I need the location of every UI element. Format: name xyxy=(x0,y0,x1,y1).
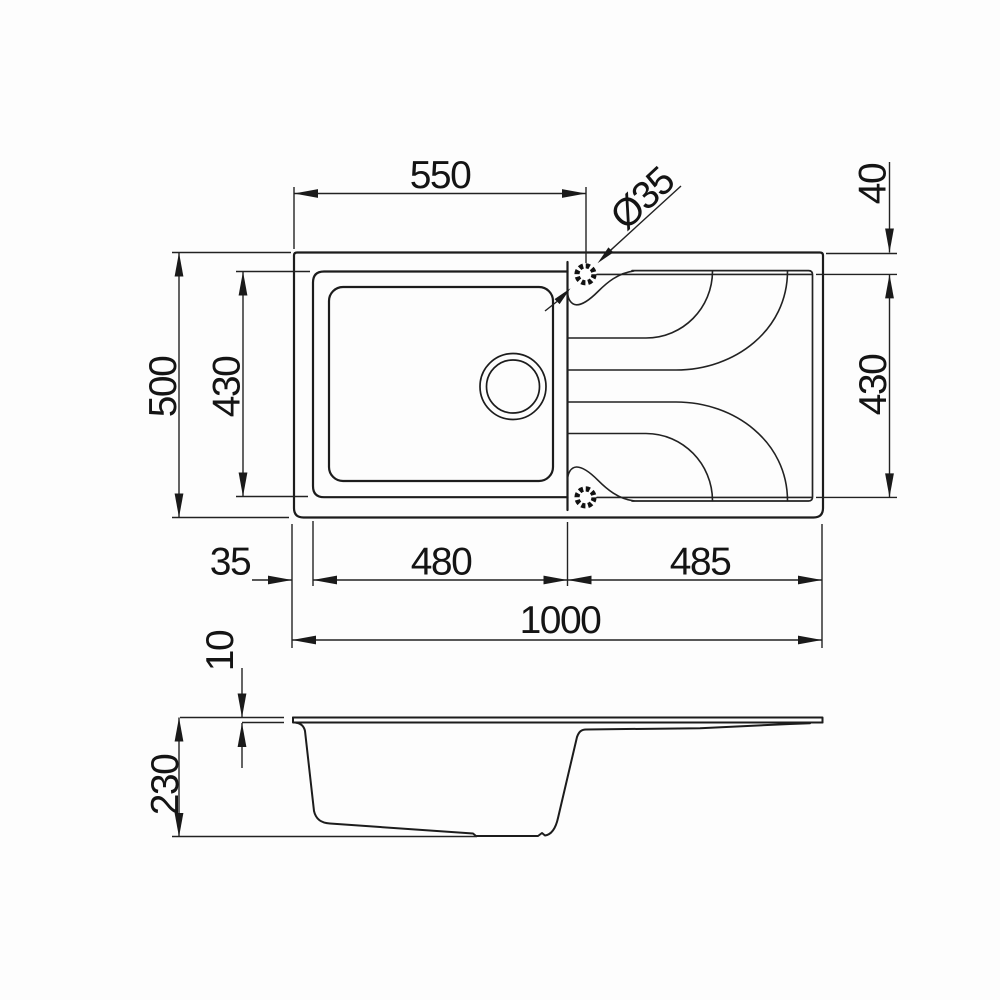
svg-text:500: 500 xyxy=(142,356,185,417)
svg-text:430: 430 xyxy=(206,356,249,417)
svg-text:40: 40 xyxy=(852,163,895,204)
svg-text:1000: 1000 xyxy=(520,599,602,642)
svg-text:10: 10 xyxy=(199,630,242,671)
svg-text:430: 430 xyxy=(852,354,895,415)
svg-text:35: 35 xyxy=(210,541,251,584)
svg-text:230: 230 xyxy=(144,754,187,815)
svg-text:550: 550 xyxy=(410,154,471,197)
svg-text:480: 480 xyxy=(411,541,472,584)
svg-text:485: 485 xyxy=(670,541,731,584)
